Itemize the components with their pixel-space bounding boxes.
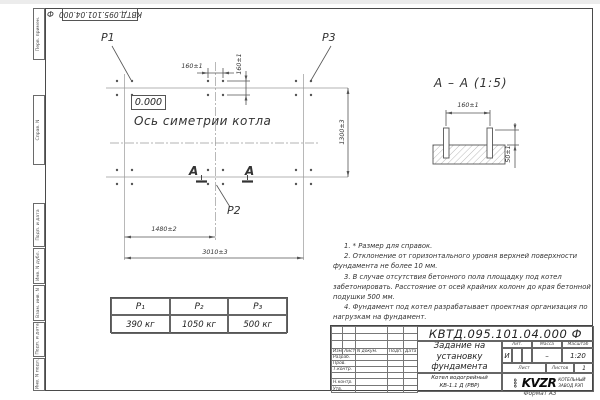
dim-bolt-spacing-v: 160±1 [236, 51, 244, 77]
titleblock-title: Задание на установку фундамента [417, 341, 502, 373]
section-title: А – А (1:5) [434, 76, 508, 90]
titleblock-lit-label: Лит. [502, 341, 532, 348]
elevation-mark: 0.000 [131, 95, 166, 110]
note-1: 1. * Размер для справок. [333, 241, 595, 251]
titleblock-massa-label: Масса [532, 341, 562, 348]
titleblock-doc-number: КВТД.095.101.04.000 Ф [417, 326, 594, 341]
p1-label: P1 [101, 31, 115, 44]
titleblock-lit-empty-1 [512, 348, 522, 363]
drawing-sheet: Ф КВТД.095.101.04.000 Перв. примен. Спра… [0, 0, 600, 400]
loads-value-p1: 390 кг [111, 315, 170, 334]
loads-header-p2: P₂ [170, 298, 229, 315]
titleblock-col-podp: Подп. [388, 349, 404, 355]
notes: 1. * Размер для справок. 2. Отклонение о… [333, 241, 595, 323]
titleblock-masshtab-label: Масштаб [562, 341, 594, 348]
titleblock-list-label: Лист [502, 363, 546, 373]
titleblock-row-utv: Утв. [332, 386, 356, 393]
note-2: 2. Отклонение от горизонтального уровня … [333, 251, 595, 271]
titleblock-listov-label: Листов [546, 363, 574, 373]
axis-lines [106, 62, 348, 260]
title-block: Изм. Лист N докум. Подп. Дата Разраб. Пр… [330, 325, 593, 391]
dim-half-span: 1480±2 [146, 226, 182, 233]
section-letter-left: А [189, 164, 198, 178]
section-dim-height: 50±1 [505, 141, 513, 167]
loads-table: P₁ P₂ P₃ 390 кг 1050 кг 500 кг [110, 297, 288, 333]
kvzr-logo: KVZR [522, 376, 557, 390]
logo-ooo-text: ООО [513, 378, 517, 387]
titleblock-masshtab-value: 1:20 [562, 348, 594, 363]
titleblock-row-tkontr: Т.контр. [332, 367, 356, 373]
dim-bolt-spacing-h: 160±1 [180, 63, 204, 70]
p2-label: P2 [227, 204, 241, 217]
logo-caption-line1: КОТЕЛЬНЫЙ [558, 377, 585, 382]
titleblock-product-line2: КВ-1.1 Д (РВР) [439, 383, 479, 390]
titleblock-product-line1: Котел водогрейный [431, 375, 488, 382]
loads-value-p2: 1050 кг [170, 315, 229, 334]
titleblock-lit-empty-2 [522, 348, 532, 363]
dim-full-span: 3010±3 [196, 249, 234, 256]
loads-value-p3: 500 кг [228, 315, 287, 334]
titleblock-col-list: Лист [343, 349, 356, 355]
section-letter-right: А [245, 164, 254, 178]
axis-caption: Ось симетрии котла [134, 114, 271, 128]
titleblock-listov-value: 1 [574, 363, 594, 373]
titleblock-lit-value: И [502, 348, 512, 363]
p3-label: P3 [322, 31, 336, 44]
titleblock-col-data: Дата [404, 349, 418, 355]
titleblock-product: Котел водогрейный КВ-1.1 Д (РВР) [417, 373, 502, 392]
logo-caption: КОТЕЛЬНЫЙ ЗАВОД РЭП [558, 377, 585, 388]
titleblock-col-izm: Изм. [332, 349, 343, 355]
logo-caption-line2: ЗАВОД РЭП [558, 383, 583, 388]
dim-depth: 1300±3 [339, 107, 347, 157]
section-dim-width: 160±1 [455, 102, 481, 109]
titleblock-row-nkontr: Н.контр. [332, 379, 356, 386]
format-label: Формат А3 [505, 391, 575, 397]
titleblock-signature-table: Изм. Лист N докум. Подп. Дата Разраб. Пр… [331, 326, 418, 393]
note-4: 4. Фундамент под котел разрабатывает про… [333, 302, 595, 322]
loads-header-p1: P₁ [111, 298, 170, 315]
titleblock-massa-value: – [532, 348, 562, 363]
loads-header-p3: P₃ [228, 298, 287, 315]
note-3: 3. В случае отсутствия бетонного пола пл… [333, 272, 595, 303]
titleblock-logo-cell: ООО KVZR КОТЕЛЬНЫЙ ЗАВОД РЭП [502, 373, 594, 392]
